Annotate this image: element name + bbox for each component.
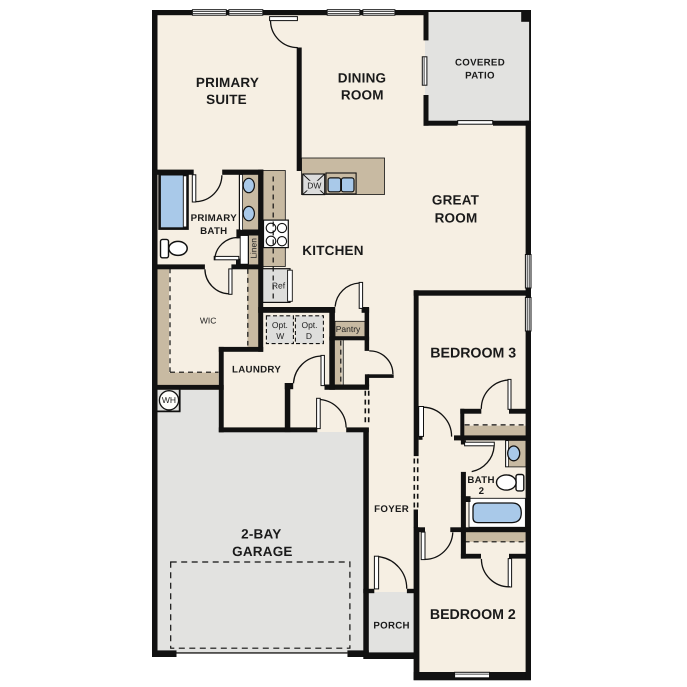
svg-text:PORCH: PORCH bbox=[373, 621, 410, 632]
svg-text:PATIO: PATIO bbox=[465, 70, 495, 81]
svg-text:Opt.: Opt. bbox=[301, 320, 317, 330]
svg-text:Pantry: Pantry bbox=[336, 324, 361, 334]
svg-text:ROOM: ROOM bbox=[435, 210, 478, 225]
svg-text:Ref: Ref bbox=[272, 280, 286, 290]
svg-text:PRIMARY: PRIMARY bbox=[196, 75, 259, 90]
svg-text:DINING: DINING bbox=[338, 71, 386, 86]
svg-text:ROOM: ROOM bbox=[341, 88, 384, 103]
svg-text:WIC: WIC bbox=[200, 316, 217, 326]
svg-text:D: D bbox=[306, 331, 312, 341]
svg-text:Opt.: Opt. bbox=[272, 320, 288, 330]
svg-text:W: W bbox=[276, 331, 284, 341]
svg-text:KITCHEN: KITCHEN bbox=[302, 243, 363, 258]
svg-text:BEDROOM 3: BEDROOM 3 bbox=[430, 345, 516, 361]
svg-text:COVERED: COVERED bbox=[455, 57, 505, 68]
svg-text:2-BAY: 2-BAY bbox=[241, 526, 281, 541]
svg-text:2: 2 bbox=[479, 486, 485, 497]
svg-text:Linen: Linen bbox=[248, 238, 258, 259]
svg-text:SUITE: SUITE bbox=[206, 92, 247, 107]
svg-text:GREAT: GREAT bbox=[432, 193, 480, 208]
svg-text:WH: WH bbox=[162, 395, 176, 405]
svg-text:DW: DW bbox=[307, 181, 321, 191]
svg-text:BATH: BATH bbox=[467, 475, 494, 486]
svg-text:PRIMARY: PRIMARY bbox=[191, 213, 238, 224]
svg-text:BEDROOM 2: BEDROOM 2 bbox=[430, 607, 516, 623]
svg-text:BATH: BATH bbox=[200, 226, 227, 237]
svg-text:GARAGE: GARAGE bbox=[232, 544, 292, 559]
svg-text:FOYER: FOYER bbox=[374, 504, 409, 515]
svg-text:LAUNDRY: LAUNDRY bbox=[232, 364, 281, 375]
